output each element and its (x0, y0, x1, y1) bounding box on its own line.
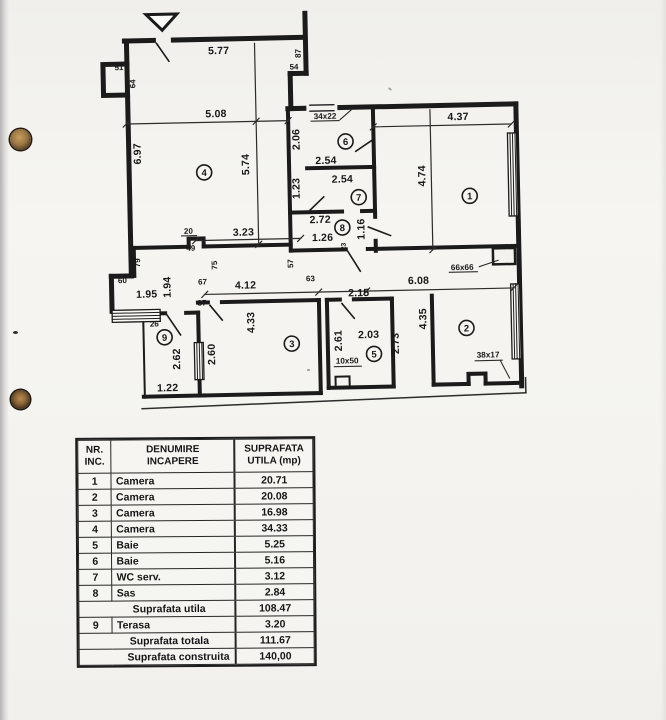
cell-label: Suprafata totala (79, 632, 236, 649)
dim-label: 63 (306, 274, 316, 283)
dim-label: 3.23 (233, 226, 254, 238)
cell-name: Camera (112, 504, 236, 521)
dim-label: 2.60 (206, 344, 218, 365)
window-gap (310, 108, 334, 109)
cell-nr: 1 (78, 473, 112, 489)
cell-name: Baie (112, 536, 236, 553)
cell-nr: 3 (78, 505, 112, 521)
dim-label: 2.61 (333, 330, 345, 351)
dim-label: 2.06 (290, 129, 302, 150)
table-row: 3 Camera 16.98 (78, 504, 313, 522)
dim-label: 6.97 (132, 143, 144, 164)
cell-name: Camera (112, 520, 236, 537)
dim-label: 4.35 (417, 308, 429, 329)
table-row: 4 Camera 34.33 (78, 520, 313, 538)
dim-label: 60 (118, 276, 128, 285)
dim-label: 1.94 (161, 276, 173, 297)
table-row: 9 Terasa 3.20 (79, 616, 314, 634)
dim-label: 23 (341, 242, 348, 250)
cell-value: 5.25 (235, 536, 313, 553)
window-hatch (109, 133, 522, 381)
dim-label: 5.74 (240, 154, 252, 175)
table-row: 7 WC serv. 3.12 (79, 568, 314, 586)
header-denumire: DENUMIRE INCAPERE (111, 439, 235, 473)
dim-label: 1.26 (312, 232, 333, 244)
table-row: 5 Baie 5.25 (78, 536, 313, 554)
dim-label: 49 (186, 244, 196, 253)
dim-label: 26 (150, 319, 160, 328)
header-suprafata: SUPRAFATA UTILA (mp) (235, 439, 313, 473)
room-number: 2 (464, 323, 470, 334)
cell-value: 140,00 (236, 648, 314, 665)
dim-label: 4.33 (245, 312, 257, 333)
header-text: SUPRAFATA (244, 443, 304, 454)
cell-value: 20.71 (235, 472, 313, 489)
cell-label: Suprafata utila (79, 600, 236, 617)
cell-value: 2.84 (236, 584, 314, 601)
cell-nr: 9 (79, 617, 113, 633)
cell-value: 108.47 (236, 600, 314, 617)
dim-label: 20 (184, 227, 194, 236)
cell-value: 111.67 (236, 632, 314, 649)
header-text: NR. (86, 445, 103, 456)
header-nr-inc: NR. INC. (78, 440, 112, 473)
area-table: NR. INC. DENUMIRE INCAPERE SUPRAFATA UTI… (75, 436, 317, 668)
window-size-label: 38x17 (477, 350, 500, 359)
table-row-built: Suprafata construita 140,00 (79, 648, 314, 666)
dim-label: 1.95 (136, 288, 157, 300)
dim-label: 1.23 (290, 178, 302, 199)
table-row-total: Suprafata totala 111.67 (79, 632, 314, 650)
dim-label: 6.08 (408, 275, 429, 287)
header-text: UTILA (mp) (247, 455, 301, 466)
room-number: 3 (289, 339, 295, 350)
dim-label: 1.22 (157, 382, 178, 394)
window-size-label: 34x22 (314, 112, 337, 121)
table-row: 1 Camera 20.71 (78, 472, 313, 490)
dim-label: 87 (294, 48, 303, 58)
cell-value: 34.33 (235, 520, 313, 537)
cell-name: Sas (112, 584, 236, 601)
entry-arrow-icon (146, 14, 177, 31)
table-row: 8 Sas 2.84 (79, 584, 314, 602)
dim-label: 79 (133, 258, 142, 268)
dim-label: 2.15 (348, 287, 369, 299)
table-header-row: NR. INC. DENUMIRE INCAPERE SUPRAFATA UTI… (78, 439, 313, 474)
dim-label: 2.72 (309, 214, 330, 226)
cell-nr: 6 (79, 553, 113, 569)
window-size-label: 66x66 (451, 263, 474, 272)
cell-nr: 2 (78, 489, 112, 505)
window-size-label: 10x50 (336, 356, 359, 365)
room-number: 5 (371, 349, 377, 360)
header-text: DENUMIRE (146, 444, 199, 455)
dim-label: 2.62 (171, 348, 183, 369)
cell-value: 3.20 (236, 616, 314, 633)
dim-label: 2.54 (332, 173, 353, 185)
cell-name: Terasa (112, 616, 236, 633)
dim-label: 51 (114, 63, 124, 72)
cell-nr: 4 (78, 521, 112, 537)
dim-label: 2.03 (358, 329, 379, 341)
dim-label: 57 (286, 259, 295, 269)
dim-label: 5.77 (208, 45, 229, 57)
dim-label: 5.08 (205, 108, 226, 120)
room-number: 9 (162, 333, 168, 344)
room-number: 6 (343, 137, 349, 148)
cell-nr: 8 (79, 585, 113, 601)
cell-value: 5.16 (235, 552, 313, 569)
dim-label: 4.12 (235, 279, 256, 291)
room-number: 4 (201, 168, 207, 179)
dim-label: 37 (197, 298, 207, 307)
table-row-subtotal: Suprafata utila 108.47 (79, 600, 314, 618)
cell-name: Baie (112, 552, 236, 569)
dim-label: 2.73 (390, 333, 402, 354)
cell-nr: 5 (78, 537, 112, 553)
room-number: 8 (340, 223, 346, 234)
column-66x66 (493, 248, 515, 264)
cell-value: 3.12 (236, 568, 314, 585)
dim-label: 4.74 (416, 165, 428, 186)
room-number: 7 (356, 193, 362, 204)
cell-label: Suprafata construita (79, 648, 236, 665)
dim-label: 1.16 (355, 218, 367, 239)
dim-label: 4.37 (447, 111, 468, 123)
cell-value: 16.98 (235, 504, 313, 521)
cell-nr: 7 (79, 569, 113, 585)
dim-label: 67 (198, 277, 208, 286)
header-text: INCAPERE (147, 456, 199, 467)
dim-label: 64 (128, 79, 137, 89)
dim-label: 75 (210, 260, 219, 270)
dim-label: 2.54 (315, 155, 336, 167)
dim-label: 54 (289, 62, 299, 71)
header-text: INC. (85, 457, 105, 468)
cell-name: Camera (111, 472, 235, 489)
cell-name: Camera (111, 488, 235, 505)
cell-name: WC serv. (112, 568, 236, 585)
cell-value: 20.08 (235, 488, 313, 505)
room-number: 1 (467, 191, 473, 202)
table-row: 2 Camera 20.08 (78, 488, 313, 506)
table-row: 6 Baie 5.16 (79, 552, 314, 570)
